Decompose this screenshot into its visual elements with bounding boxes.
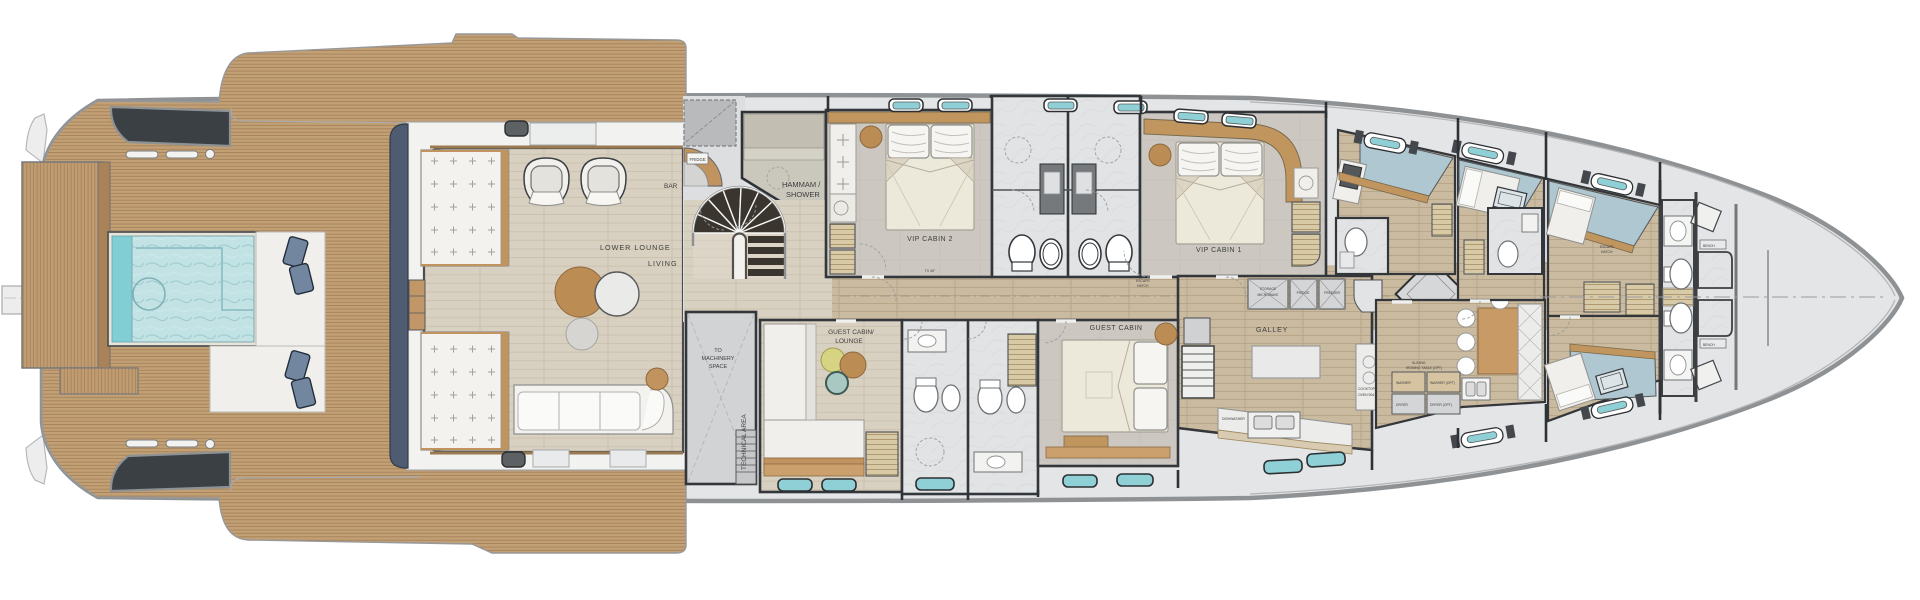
svg-text:HATCH: HATCH <box>1601 250 1613 254</box>
svg-text:HATCH: HATCH <box>1137 284 1149 288</box>
svg-text:LIVING: LIVING <box>648 259 678 268</box>
svg-text:ESCAPE: ESCAPE <box>1600 245 1614 249</box>
svg-text:GUEST CABIN/: GUEST CABIN/ <box>828 329 874 336</box>
svg-text:TO: TO <box>714 348 722 354</box>
svg-text:MACHINERY: MACHINERY <box>702 356 735 362</box>
svg-text:GALLEY: GALLEY <box>1256 327 1288 334</box>
svg-text:LOWER LOUNGE: LOWER LOUNGE <box>600 243 671 252</box>
svg-text:LOUNGE: LOUNGE <box>835 338 863 345</box>
svg-text:ESCAPE: ESCAPE <box>1136 279 1150 283</box>
svg-text:FRIDGE: FRIDGE <box>690 157 706 162</box>
svg-text:TECHNICAL AREA: TECHNICAL AREA <box>741 414 748 470</box>
svg-text:DRYER: DRYER <box>1396 403 1408 407</box>
svg-text:VIP CABIN 2: VIP CABIN 2 <box>907 236 953 243</box>
svg-text:IRONING TABLE (OPT): IRONING TABLE (OPT) <box>1406 366 1442 370</box>
svg-text:OVEN 90d: OVEN 90d <box>1358 393 1374 397</box>
svg-text:MICROWAVE: MICROWAVE <box>1258 293 1280 297</box>
svg-text:SLIDING: SLIDING <box>1412 361 1426 365</box>
svg-text:BENCH: BENCH <box>1703 343 1715 347</box>
svg-text:TV 40": TV 40" <box>925 269 936 273</box>
svg-text:WASHER: WASHER <box>1396 381 1411 385</box>
svg-text:VIP CABIN 1: VIP CABIN 1 <box>1196 247 1242 254</box>
svg-text:DISHWASHER: DISHWASHER <box>1222 417 1245 421</box>
svg-text:HAMMAM /: HAMMAM / <box>782 180 821 189</box>
svg-text:DRYER (OPT): DRYER (OPT) <box>1430 403 1452 407</box>
svg-text:SHOWER: SHOWER <box>786 190 820 199</box>
svg-text:BENCH: BENCH <box>1703 244 1715 248</box>
svg-text:FRIDGE: FRIDGE <box>1297 291 1311 295</box>
svg-text:SPACE: SPACE <box>709 364 728 370</box>
svg-text:GUEST CABIN: GUEST CABIN <box>1090 325 1143 332</box>
svg-text:WASHER (OPT): WASHER (OPT) <box>1430 381 1455 385</box>
svg-text:STORAGE: STORAGE <box>1260 287 1277 291</box>
svg-text:COOKTOP: COOKTOP <box>1358 387 1376 391</box>
svg-text:BAR: BAR <box>664 183 678 190</box>
svg-text:FREEZER: FREEZER <box>1324 291 1340 295</box>
